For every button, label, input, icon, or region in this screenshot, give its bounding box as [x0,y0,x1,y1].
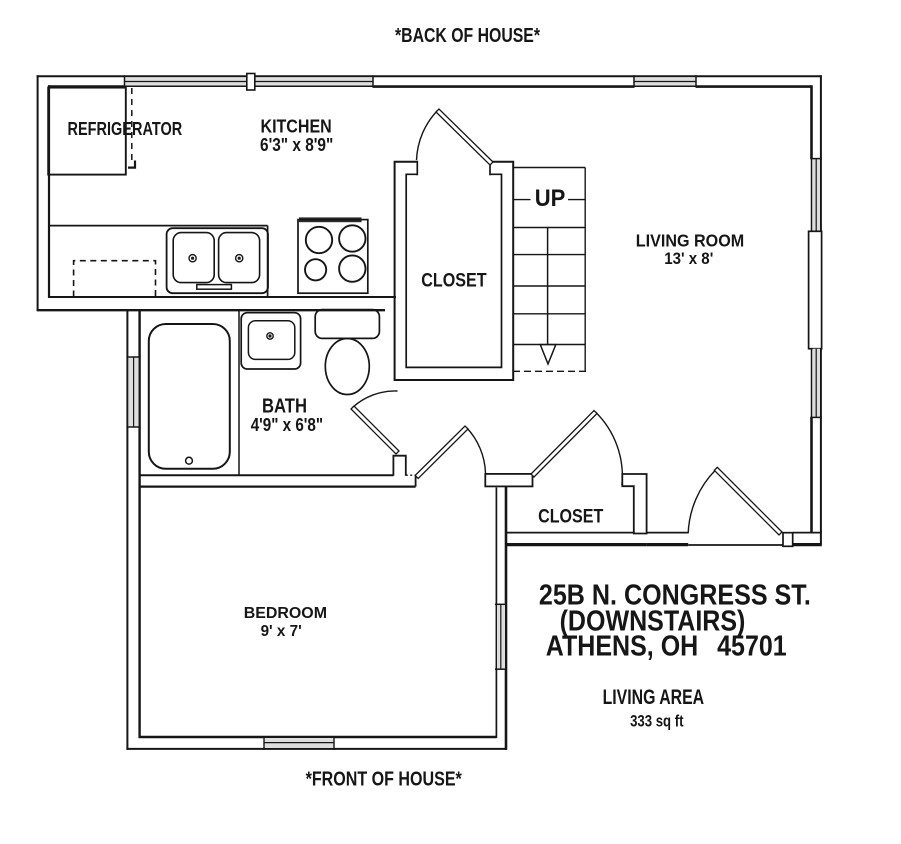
svg-text:*FRONT OF HOUSE*: *FRONT OF HOUSE* [306,769,462,791]
svg-text:6'3" x 8'9": 6'3" x 8'9" [260,135,333,155]
svg-text:LIVING AREA: LIVING AREA [603,686,705,709]
svg-text:KITCHEN: KITCHEN [261,117,332,137]
svg-text:333 sq ft: 333 sq ft [630,712,684,731]
svg-text:CLOSET: CLOSET [538,506,604,527]
svg-text:BEDROOM: BEDROOM [244,605,327,622]
svg-text:4'9" x 6'8": 4'9" x 6'8" [251,415,323,435]
svg-text:CLOSET: CLOSET [421,271,487,292]
svg-text:UP: UP [535,185,566,212]
svg-text:ATHENS, OH 45701: ATHENS, OH 45701 [546,630,787,662]
svg-text:REFRIGERATOR: REFRIGERATOR [68,119,183,139]
svg-text:9' x 7': 9' x 7' [261,623,302,640]
svg-text:LIVING ROOM: LIVING ROOM [636,231,744,251]
svg-text:13' x 8': 13' x 8' [664,250,713,268]
svg-text:*BACK OF HOUSE*: *BACK OF HOUSE* [395,25,540,47]
